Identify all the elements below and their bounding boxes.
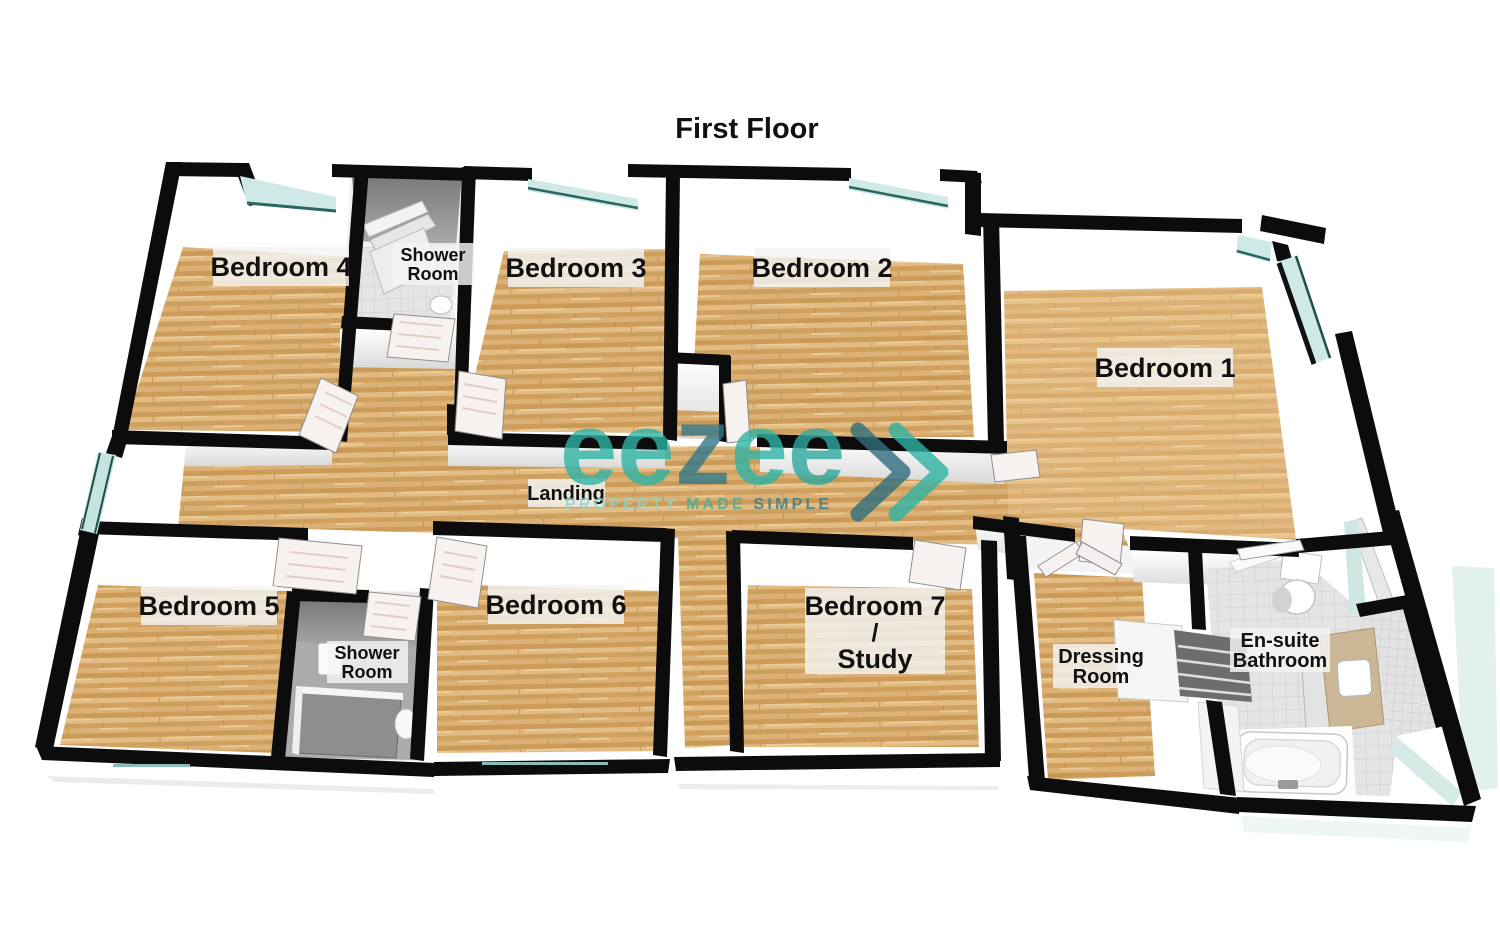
- svg-text:Bedroom 6: Bedroom 6: [485, 590, 626, 620]
- svg-text:Bedroom 4: Bedroom 4: [210, 252, 351, 282]
- svg-text:Room: Room: [408, 264, 459, 284]
- svg-text:Bathroom: Bathroom: [1233, 650, 1327, 672]
- svg-text:Shower: Shower: [400, 245, 465, 265]
- svg-text:Room: Room: [1073, 666, 1130, 688]
- svg-text:Bedroom 3: Bedroom 3: [505, 253, 646, 283]
- svg-text:Study: Study: [837, 644, 912, 674]
- svg-text:eezee: eezee: [560, 383, 845, 508]
- svg-text:First Floor: First Floor: [675, 113, 818, 145]
- svg-text:Dressing: Dressing: [1058, 646, 1144, 668]
- svg-text:Shower: Shower: [334, 643, 399, 663]
- svg-text:Bedroom 5: Bedroom 5: [138, 591, 279, 621]
- svg-text:En-suite: En-suite: [1241, 630, 1320, 652]
- svg-text:Bedroom 2: Bedroom 2: [751, 253, 892, 283]
- svg-text:Room: Room: [342, 662, 393, 682]
- svg-text:PROPERTY MADE SIMPLE: PROPERTY MADE SIMPLE: [565, 496, 832, 513]
- svg-text:Bedroom 1: Bedroom 1: [1094, 353, 1235, 383]
- svg-text:Bedroom 7: Bedroom 7: [804, 591, 945, 621]
- svg-text:/: /: [872, 619, 879, 647]
